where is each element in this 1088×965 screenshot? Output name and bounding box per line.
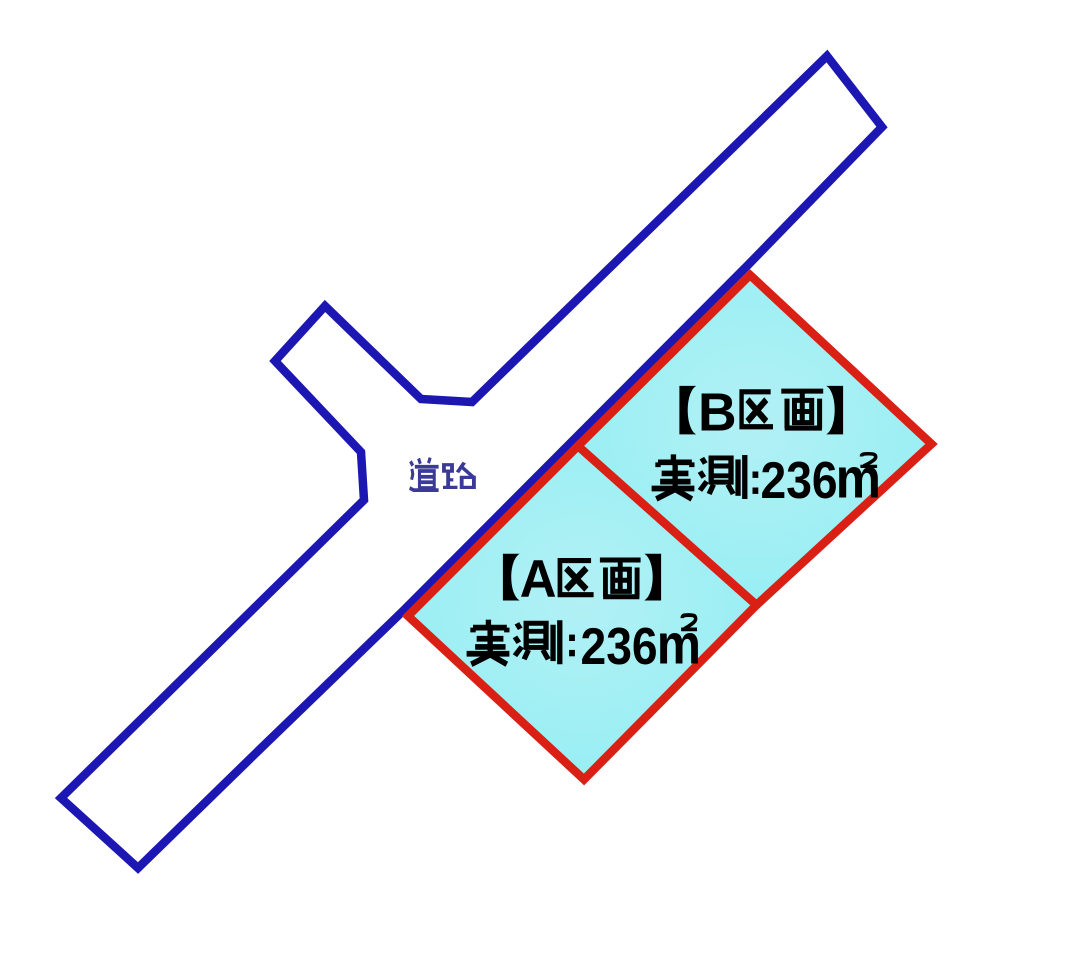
svg-text:A: A <box>520 549 557 608</box>
svg-text:B: B <box>698 382 737 442</box>
svg-text:236: 236 <box>581 618 658 675</box>
svg-text:236: 236 <box>761 452 838 509</box>
